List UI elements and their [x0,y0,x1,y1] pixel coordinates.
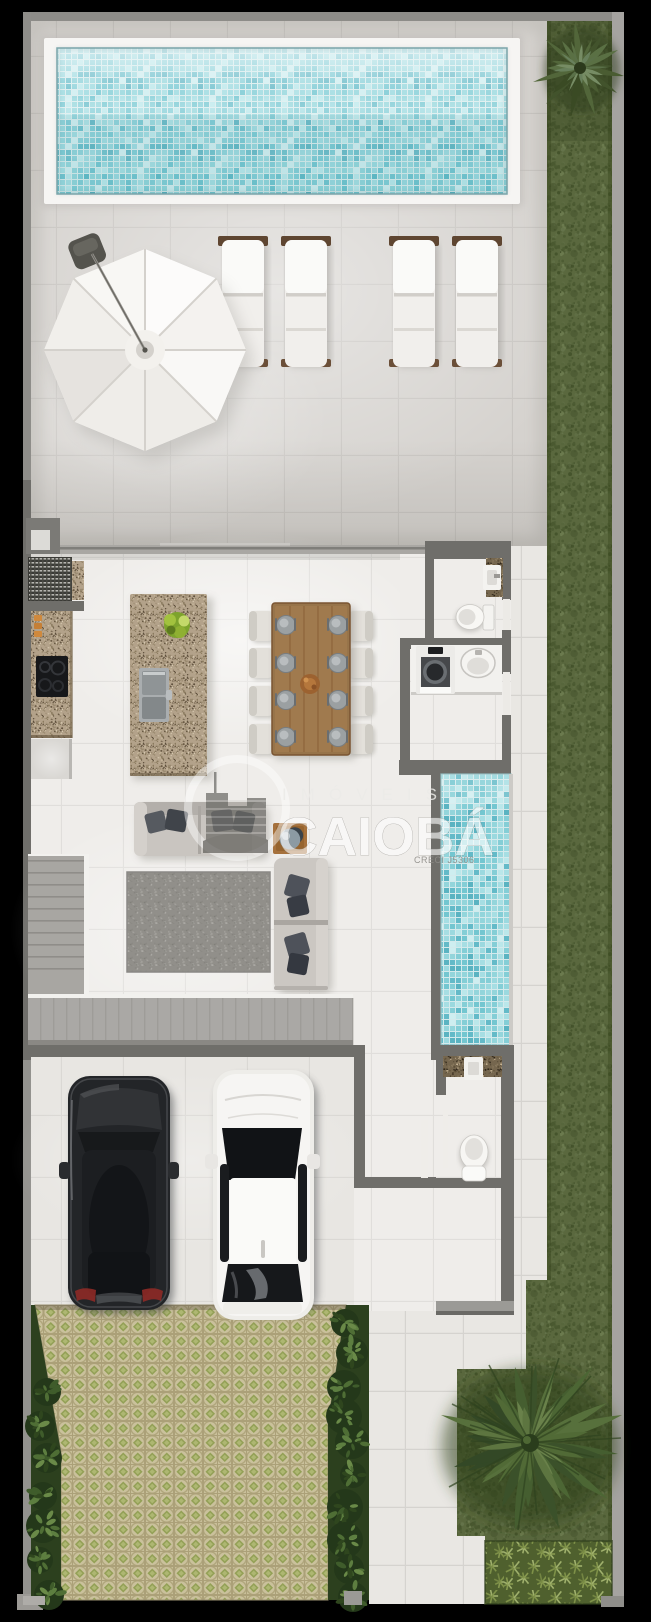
svg-text:CRECI J5306: CRECI J5306 [414,855,475,865]
